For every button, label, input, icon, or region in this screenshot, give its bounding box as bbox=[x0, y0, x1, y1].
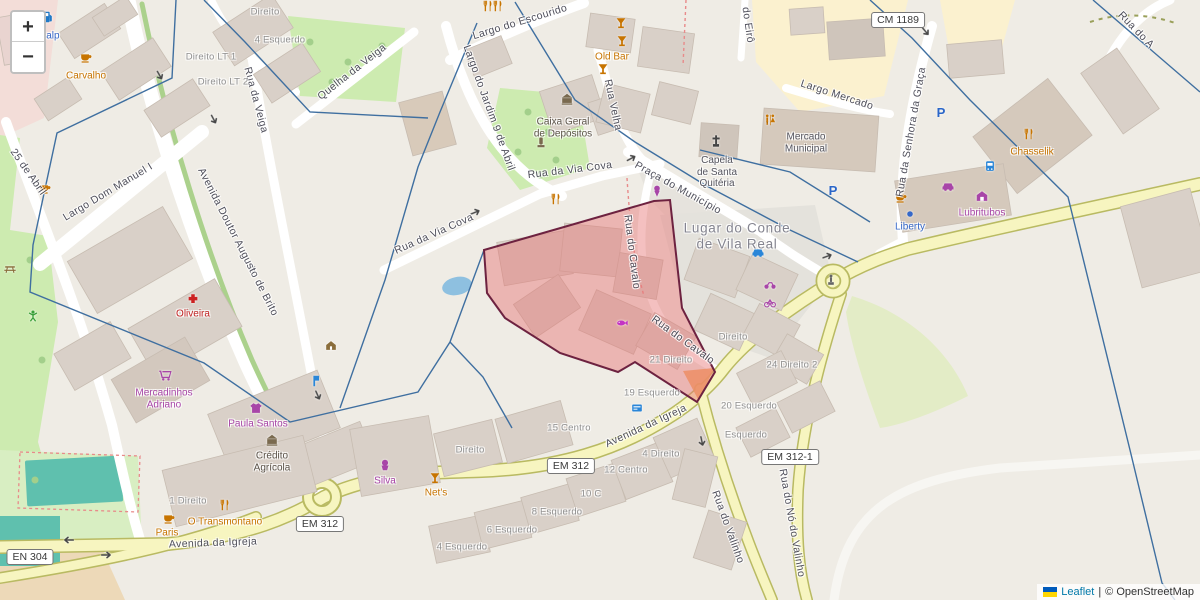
boundary-line bbox=[340, 23, 477, 408]
boundary-line bbox=[700, 150, 870, 222]
zoom-control: + − bbox=[10, 10, 46, 74]
ukraine-flag-icon bbox=[1043, 587, 1057, 597]
attribution-separator: | bbox=[1098, 586, 1101, 598]
boundary-line bbox=[30, 0, 484, 422]
leaflet-link[interactable]: Leaflet bbox=[1061, 586, 1094, 598]
boundary-line bbox=[204, 0, 428, 118]
boundary-line bbox=[515, 2, 858, 262]
boundary-line bbox=[870, 0, 1175, 600]
boundary-line bbox=[1093, 0, 1200, 92]
map[interactable]: P bbox=[0, 0, 1200, 600]
map-overlays bbox=[0, 0, 1200, 600]
boundary-line bbox=[450, 342, 512, 428]
attribution-bar: Leaflet | © OpenStreetMap bbox=[1037, 584, 1200, 600]
zoom-in-button[interactable]: + bbox=[12, 12, 44, 42]
selected-region-polygon[interactable] bbox=[484, 200, 715, 402]
zoom-out-button[interactable]: − bbox=[12, 42, 44, 72]
osm-credit: © OpenStreetMap bbox=[1105, 586, 1194, 598]
